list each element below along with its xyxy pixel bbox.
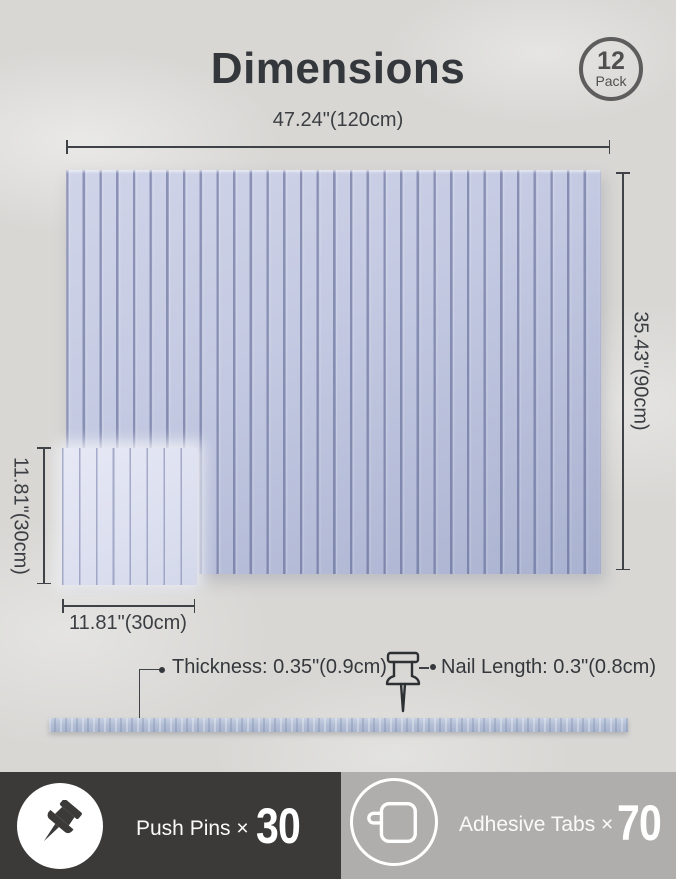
adhesive-tab-icon-circle [350, 778, 438, 866]
push-pins-count: 30 [256, 801, 300, 851]
push-pins-label: Push Pins × [136, 817, 249, 841]
small-panel-height-dimension-line [43, 447, 45, 584]
push-pin-icon [34, 800, 86, 852]
thickness-label: Thickness: 0.35"(0.9cm) [172, 656, 387, 679]
large-panel-width-label: 47.24"(120cm) [66, 109, 610, 132]
small-panel-width-dimension-line [62, 605, 195, 607]
small-felt-panel-image [62, 448, 197, 585]
adhesive-tabs-count: 70 [617, 798, 661, 848]
pack-count: 12 [597, 49, 625, 74]
adhesive-tab-icon [365, 793, 423, 851]
page-title: Dimensions [0, 44, 676, 94]
package-contents-bar: Push Pins × 30 Adhesive Tabs × 70 [0, 772, 676, 879]
push-pin-outline-icon [381, 651, 425, 719]
pack-count-badge: 12 Pack [579, 37, 643, 101]
nail-length-leader-line [419, 667, 429, 669]
panel-edge-side-view [49, 718, 628, 732]
nail-length-label: Nail Length: 0.3"(0.8cm) [441, 656, 656, 679]
adhesive-tabs-section: Adhesive Tabs × 70 [341, 772, 676, 879]
large-panel-height-label: 35.43"(90cm) [629, 311, 652, 430]
product-dimensions-infographic: Dimensions 12 Pack 47.24"(120cm) 35.43"(… [0, 0, 676, 879]
small-panel-width-label: 11.81"(30cm) [40, 612, 216, 635]
nail-length-leader-dot [430, 664, 436, 670]
thickness-leader-dot [159, 667, 165, 673]
push-pin-icon-circle [17, 783, 103, 869]
large-panel-width-dimension-line [66, 146, 610, 148]
thickness-leader-line [139, 669, 162, 718]
large-panel-height-dimension-line [622, 172, 624, 570]
small-panel-height-label: 11.81"(30cm) [9, 457, 32, 575]
adhesive-tabs-label: Adhesive Tabs × [459, 813, 613, 837]
push-pins-section: Push Pins × 30 [0, 772, 341, 879]
pack-unit: Pack [595, 74, 626, 89]
